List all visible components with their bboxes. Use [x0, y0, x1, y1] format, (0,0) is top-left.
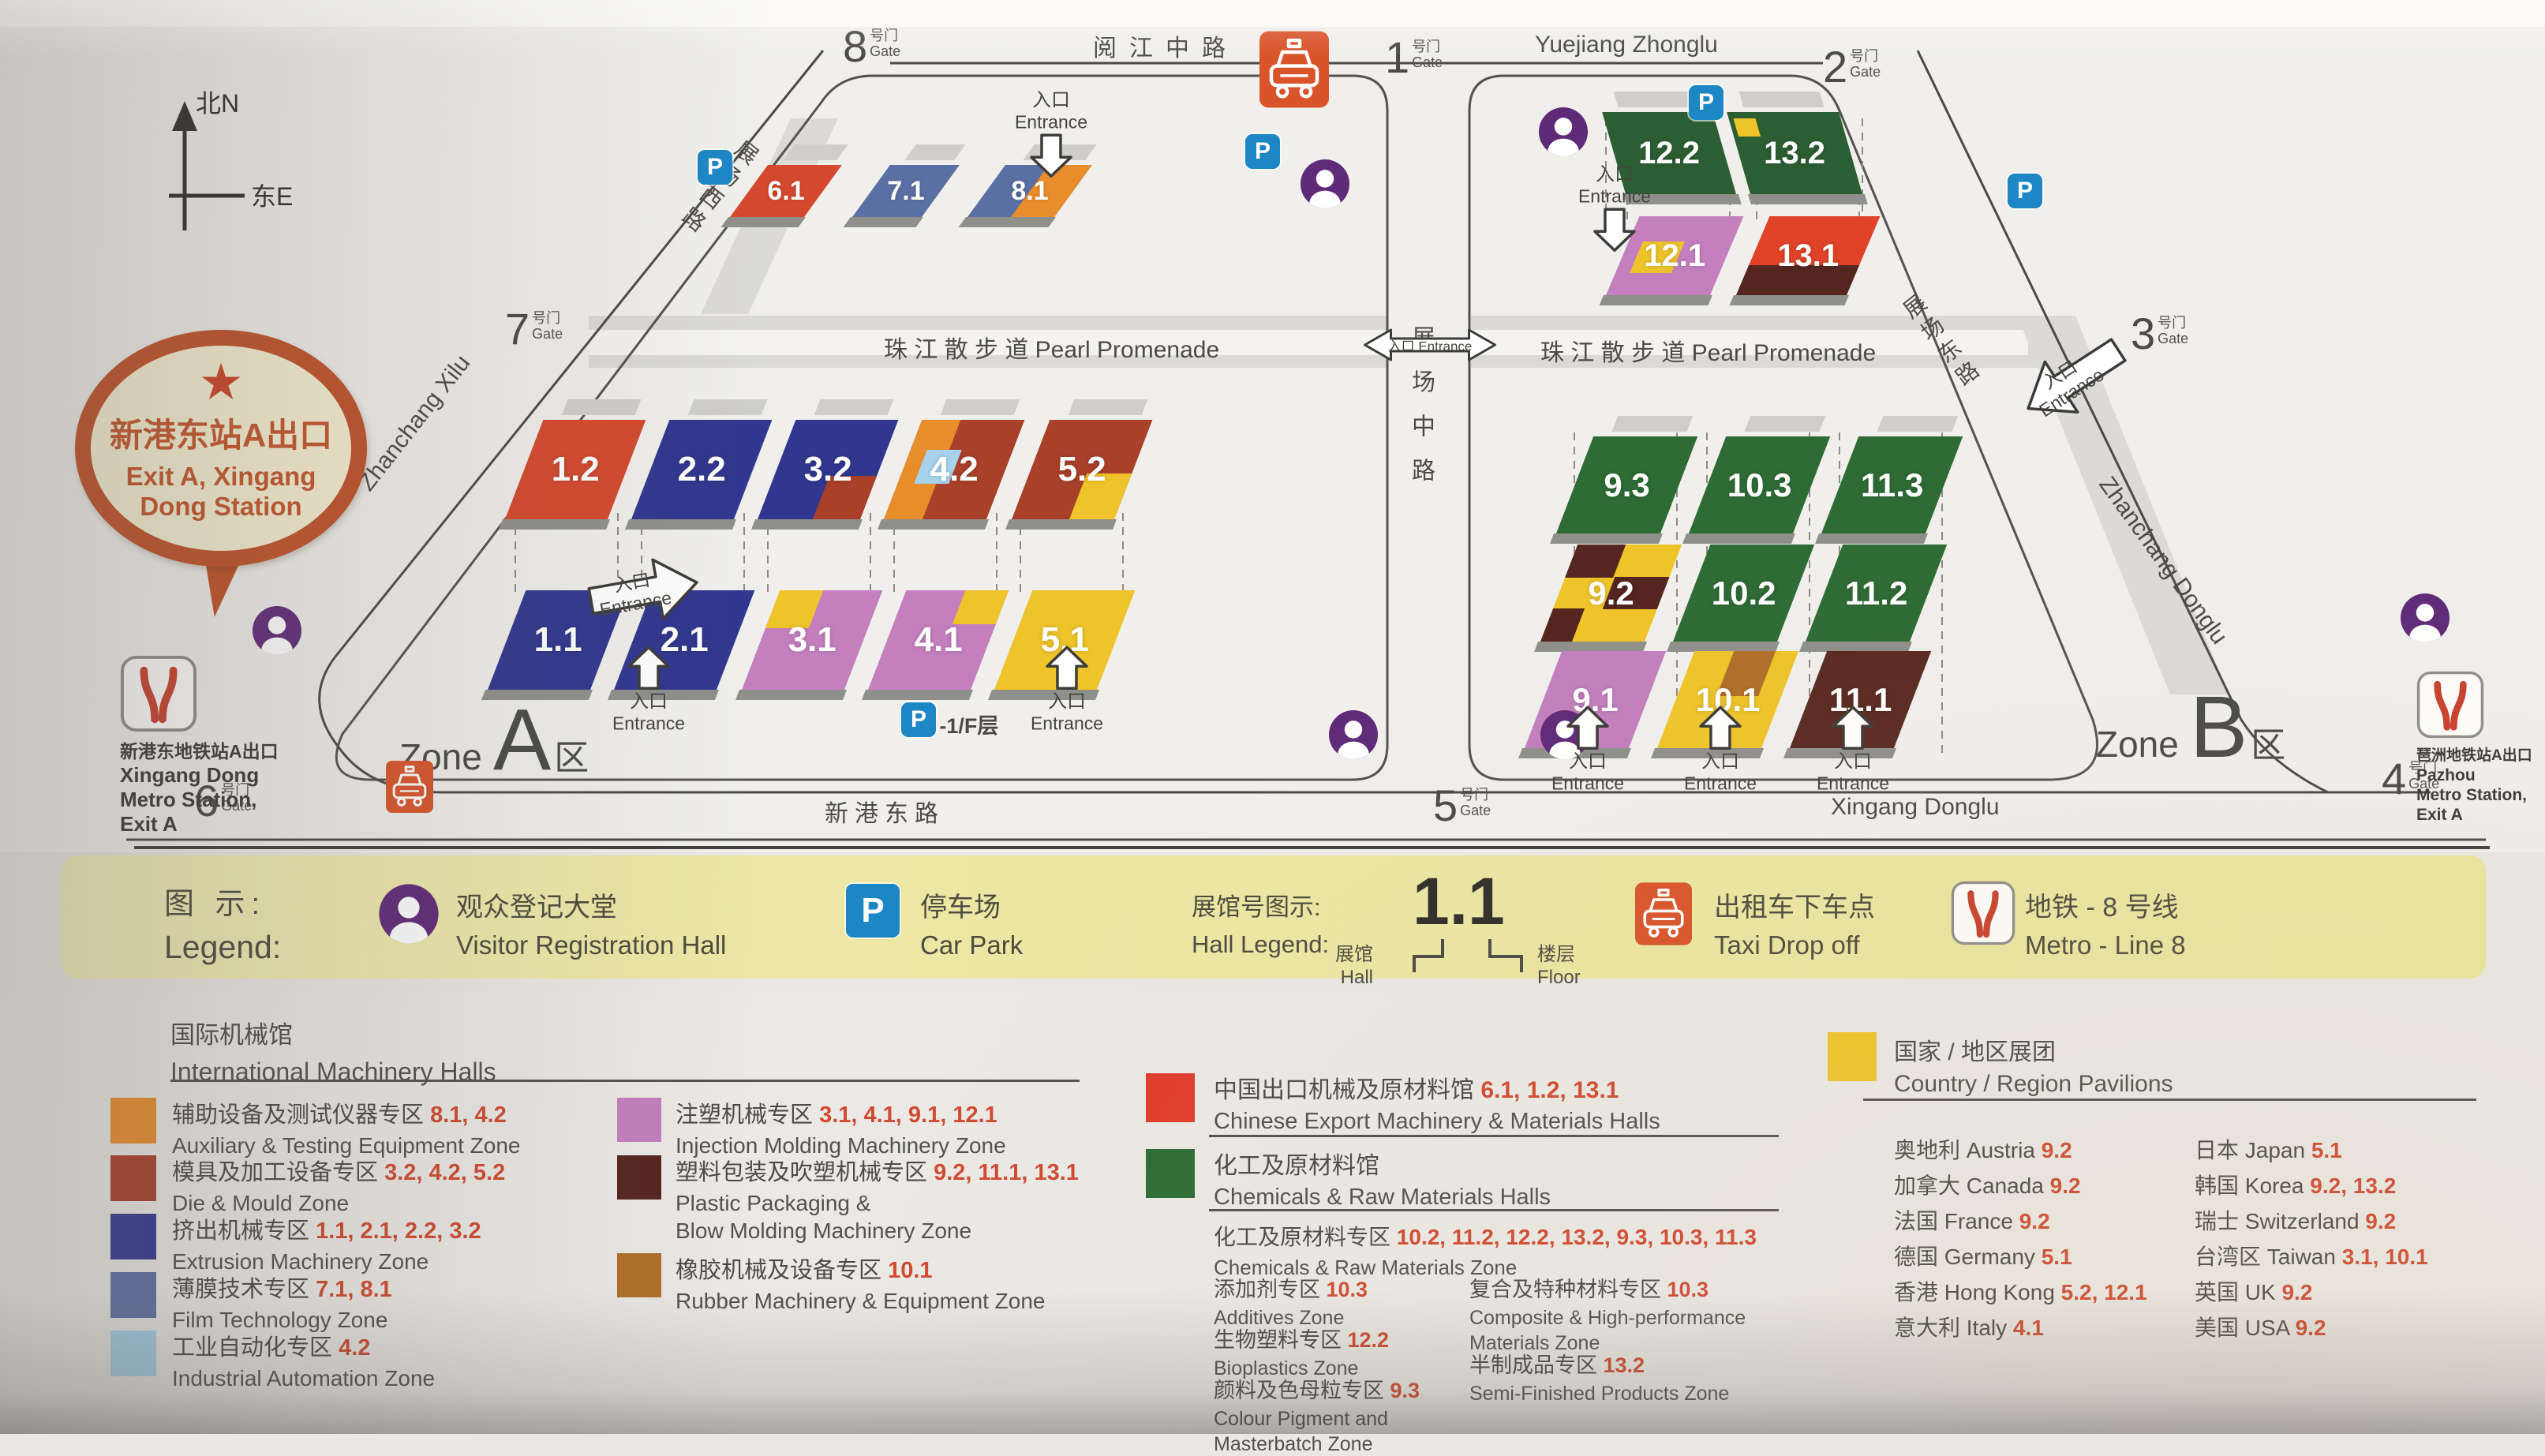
entrance-label: 入口 Entrance: [1388, 335, 1473, 355]
metro-station-label-en: Metro Station,: [2416, 785, 2545, 805]
country-item: 法国 France 9.2: [1894, 1204, 2050, 1236]
hall-shadow: [735, 690, 846, 700]
hall-13.1: 13.1: [1736, 216, 1880, 295]
metro-station-label-en: Pazhou: [2416, 765, 2545, 785]
entrance-label-cn: 入口: [1569, 750, 1607, 772]
hall-10.2: 10.2: [1673, 545, 1814, 642]
country-item: 奥地利 Austria 9.2: [1894, 1133, 2072, 1165]
legend-item: 化工及原材料馆Chemicals & Raw Materials Halls: [1214, 1146, 1551, 1211]
roof-slab: [814, 399, 893, 415]
legend-swatch: [617, 1098, 661, 1142]
parking-icon: P: [698, 150, 732, 185]
entrance-label-en: Entrance: [1684, 773, 1757, 794]
metro-station-label-cn: 新港东地铁站A出口: [120, 741, 300, 763]
metro-station-label-cn: 琶洲地铁站A出口: [2416, 747, 2545, 765]
taxi-label-en: Taxi Drop off: [1714, 930, 1875, 960]
hall-number-sample: 1.1: [1413, 868, 1505, 934]
hall-number: 9.3: [1575, 436, 1679, 533]
entrance-up: 入口Entrance: [1551, 705, 1624, 794]
hall-3.2: 3.2: [758, 420, 898, 519]
hall-1.2: 1.2: [505, 420, 646, 519]
gate-label-cn: 号门: [1850, 49, 1881, 65]
hall-shadow: [1600, 295, 1712, 305]
parking-icon: P: [2008, 174, 2042, 208]
pav-underline: [1863, 1099, 2476, 1101]
road-label-10: 珠 江 散 步 道 Pearl Promenade: [1540, 333, 1876, 368]
hall-number: 13.1: [1753, 216, 1863, 295]
entrance-label-en: Entrance: [1551, 773, 1624, 794]
compass-north-label: 北N: [196, 89, 239, 118]
floor-part-en: Floor: [1537, 967, 1581, 990]
roof-slab: [1612, 416, 1694, 432]
visitor-registration-icon: [251, 604, 303, 661]
visitor-registration-icon: [2399, 592, 2451, 648]
entrance-label-en: Entrance: [612, 713, 685, 734]
hall-shadow: [1730, 295, 1849, 305]
hall-number: 10.2: [1692, 545, 1796, 642]
road-label-8: Xingang Donglu: [1831, 794, 2000, 821]
legend-item: 化工及原材料专区 10.2, 11.2, 12.2, 13.2, 9.3, 10…: [1214, 1220, 1757, 1280]
country-item: 德国 Germany 5.1: [1894, 1240, 2072, 1271]
road-east-outer: [1918, 51, 2328, 792]
parking-floor-note: -1/F层: [939, 709, 998, 739]
legend-title-en: Legend:: [164, 929, 281, 966]
gate-number: 1: [1385, 36, 1409, 78]
legend-item: 复合及特种材料专区 10.3Composite & High-performan…: [1469, 1272, 1746, 1355]
legend-swatch: [110, 1331, 156, 1376]
country-item: 香港 Hong Kong 5.2, 12.1: [1894, 1275, 2147, 1307]
gate-number: 2: [1823, 46, 1847, 88]
entrance-up: 入口Entrance: [612, 645, 685, 734]
car-park-icon: P: [846, 884, 900, 938]
taxi-drop-icon: [1635, 882, 1692, 949]
visitor-hall-icon: [377, 882, 440, 949]
car-park-label-en: Car Park: [920, 930, 1023, 960]
hall-2.2: 2.2: [631, 420, 772, 519]
hall-shadow: [1748, 194, 1867, 204]
badge-title-cn: 新港东站A出口: [91, 409, 351, 457]
hall-shadow: [1682, 533, 1795, 544]
taxi-icon: [384, 761, 436, 817]
legend-item: 薄膜技术专区 7.1, 8.1Film Technology Zone: [172, 1271, 392, 1333]
hall-number: 3.2: [777, 420, 879, 519]
gate-number: 5: [1433, 784, 1458, 826]
country-item: 加拿大 Canada 9.2: [1894, 1169, 2081, 1200]
legend-title-cn: 图 示:: [164, 879, 281, 923]
zone-suffix-cn: 区: [2251, 717, 2285, 767]
country-item: 瑞士 Switzerland 9.2: [2195, 1204, 2396, 1236]
roof-slab: [561, 399, 641, 415]
parking-icon: P-1/F层: [901, 702, 936, 737]
badge-title-en1: Exit A, Xingang: [126, 462, 316, 491]
hall-number: 10.3: [1708, 436, 1812, 533]
road-label-1: Yuejiang Zhonglu: [1535, 32, 1718, 58]
gate-8: 8 号门 Gate: [843, 25, 900, 67]
gate-5: 5 号门 Gate: [1433, 784, 1491, 826]
legend-item: 添加剂专区 10.3Additives Zone: [1214, 1272, 1368, 1330]
legend-swatch: [110, 1214, 156, 1259]
legend-swatch: [110, 1098, 156, 1143]
compass: 北N 东E: [169, 89, 293, 230]
entrance-down: 入口Entrance: [1015, 89, 1087, 178]
entrance-label-cn: 入口: [1834, 750, 1872, 772]
zone-letter: B: [2190, 688, 2247, 766]
hall-number: 4.1: [887, 590, 990, 690]
zone-word: Zone: [2096, 723, 2179, 765]
gate-number: 8: [843, 25, 867, 67]
hall-number: 7.1: [871, 165, 941, 217]
legend-swatch: [617, 1253, 661, 1297]
hall-shadow: [1550, 533, 1662, 544]
hall-number: 9.2: [1559, 545, 1664, 642]
chem-swatch: [1146, 1149, 1195, 1198]
hall-number: 6.1: [749, 165, 823, 217]
gate-number: 7: [505, 308, 530, 350]
legend-item: 中国出口机械及原材料馆 6.1, 1.2, 13.1Chinese Export…: [1214, 1070, 1660, 1135]
metro-station-label-en: Metro Station,: [120, 788, 300, 812]
country-item: 日本 Japan 5.1: [2195, 1133, 2342, 1165]
legend-item: 半制成品专区 13.2Semi-Finished Products Zone: [1469, 1348, 1729, 1405]
legend-swatch: [617, 1155, 661, 1200]
roof-slab: [1738, 92, 1824, 107]
legend-item: 注塑机械专区 3.1, 4.1, 9.1, 12.1Injection Mold…: [676, 1096, 1006, 1158]
gate-2: 2 号门 Gate: [1823, 46, 1881, 88]
hall-10.3: 10.3: [1689, 436, 1830, 533]
hall-number: 5.2: [1031, 420, 1133, 519]
road-label-7: 新港东路: [825, 794, 945, 829]
hall-legend-title-en: Hall Legend:: [1192, 930, 1329, 959]
hall-shadow: [499, 519, 609, 530]
hall-shadow: [721, 217, 806, 227]
roof-slab: [940, 399, 1020, 415]
entrance-label-cn: 入口: [1701, 750, 1739, 772]
country-item: 台湾区 Taiwan 3.1, 10.1: [2195, 1240, 2428, 1271]
metro-station-icon-pazhou: 琶洲地铁站A出口PazhouMetro Station,Exit A: [2416, 671, 2545, 825]
roof-slab: [1877, 416, 1959, 432]
entrance-up: 入口Entrance: [1817, 705, 1889, 794]
legend-item: 挤出机械专区 1.1, 2.1, 2.2, 3.2Extrusion Machi…: [172, 1212, 481, 1274]
metro-label-en: Metro - Line 8: [2025, 930, 2186, 960]
hall-13.2: 13.2: [1727, 112, 1862, 194]
intl-halls-title-en: International Machinery Halls: [170, 1057, 496, 1087]
road-label-9: 珠 江 散 步 道 Pearl Promenade: [884, 330, 1219, 365]
entrance-label-en: Entrance: [1578, 186, 1651, 207]
divider-line: [134, 846, 2490, 849]
roof-slab: [1068, 399, 1147, 415]
taxi-label-cn: 出租车下车点: [1714, 885, 1875, 924]
legend-item: 工业自动化专区 4.2Industrial Automation Zone: [172, 1329, 435, 1391]
visitor-hall-label-cn: 观众登记大堂: [456, 885, 726, 924]
legend-item: 橡胶机械及设备专区 10.1Rubber Machinery & Equipme…: [676, 1252, 1045, 1314]
gate-label-en: Gate: [1412, 55, 1443, 71]
gate-label-en: Gate: [1850, 65, 1881, 80]
road-label-0: 阅江中路: [1093, 28, 1238, 63]
export-underline: [1209, 1135, 1779, 1137]
entrance-down: 入口Entrance: [1578, 163, 1651, 253]
hall-4.1: 4.1: [868, 590, 1009, 690]
country-item: 美国 USA 9.2: [2195, 1311, 2326, 1342]
zone-letter: A: [493, 701, 551, 779]
entrance-up: 入口Entrance: [1031, 645, 1103, 734]
legend-item: 辅助设备及测试仪器专区 8.1, 4.2Auxiliary & Testing …: [172, 1096, 521, 1158]
gate-label-en: Gate: [532, 327, 563, 342]
gate-label-cn: 号门: [1412, 39, 1443, 55]
hall-shadow: [751, 519, 862, 530]
entrance-label-en: Entrance: [1031, 713, 1103, 734]
gate-label-en: Gate: [1460, 803, 1491, 819]
hall-shadow: [862, 690, 972, 700]
country-item: 英国 UK 9.2: [2195, 1275, 2312, 1307]
taxi-icon: [1259, 30, 1329, 113]
hall-9.2: 9.2: [1540, 545, 1682, 642]
country-item: 韩国 Korea 9.2, 13.2: [2195, 1169, 2396, 1200]
entrance-label-en: Entrance: [1817, 773, 1889, 794]
hall-11.2: 11.2: [1806, 545, 1947, 642]
gate-label-cn: 号门: [532, 311, 563, 327]
legend-item: 生物塑料专区 12.2Bioplastics Zone: [1214, 1323, 1389, 1380]
legend-swatch: [110, 1272, 156, 1318]
compass-east-label: 东E: [251, 182, 293, 211]
gate-3: 3 号门 Gate: [2131, 313, 2188, 354]
gate-label-cn: 号门: [2158, 316, 2188, 331]
intl-underline: [170, 1080, 1080, 1082]
hall-shadow: [1815, 533, 1927, 544]
hall-number: 13.2: [1738, 112, 1851, 194]
metro-line8-icon: [1951, 881, 2015, 949]
hall-number: 4.2: [903, 420, 1005, 519]
hall-number: 1.2: [524, 420, 627, 519]
hall-shadow: [958, 217, 1056, 227]
gate-7: 7 号门 Gate: [505, 308, 563, 350]
hall-number: 11.2: [1825, 545, 1929, 642]
hall-3.1: 3.1: [742, 590, 882, 690]
star-icon: ★: [91, 357, 351, 407]
hall-number: 3.1: [761, 590, 863, 690]
hall-shadow: [1005, 519, 1116, 530]
entrance-label-cn: 入口: [1596, 163, 1634, 185]
roof-slab: [1614, 92, 1698, 107]
hall-number: 11.3: [1840, 436, 1944, 533]
parking-icon: P: [1689, 85, 1723, 120]
visitor-registration-icon: [1327, 709, 1379, 765]
visitor-hall-label-en: Visitor Registration Hall: [456, 930, 726, 960]
intl-halls-title-cn: 国际机械馆: [170, 1015, 496, 1050]
export-swatch: [1146, 1073, 1195, 1122]
metro-station-label-en: Exit A: [120, 812, 300, 837]
entrance-up: 入口Entrance: [1684, 705, 1757, 794]
entrance-double: 入口 Entrance: [1361, 319, 1499, 371]
zone-suffix-cn: 区: [554, 729, 589, 780]
hall-4.2: 4.2: [884, 420, 1024, 519]
car-park-label-cn: 停车场: [920, 885, 1023, 924]
hall-9.3: 9.3: [1556, 436, 1697, 533]
hall-shadow: [625, 519, 735, 530]
hall-part-cn: 展馆: [1335, 944, 1373, 967]
roof-slab: [687, 399, 767, 415]
metro-station-icon-xingangdong: 新港东地铁站A出口Xingang DongMetro Station,Exit …: [120, 655, 300, 837]
parking-icon: P: [1245, 134, 1280, 169]
floor-part-cn: 楼层: [1537, 944, 1581, 967]
entrance-label-cn: 入口: [1048, 691, 1086, 712]
gate-label-en: Gate: [2158, 331, 2188, 347]
legend-swatch: [110, 1155, 156, 1201]
legend-item: 颜料及色母粒专区 9.3Colour Pigment andMasterbatc…: [1214, 1373, 1420, 1456]
gate-number: 3: [2131, 313, 2155, 354]
hall-number: 2.2: [650, 420, 753, 519]
pavilion-swatch: [1828, 1032, 1877, 1081]
hall-11.3: 11.3: [1821, 436, 1963, 533]
gate-number: 4: [2382, 758, 2406, 799]
metro-station-label-en: Xingang Dong: [120, 763, 300, 788]
zone-label-B: Zone B 区: [2096, 688, 2285, 767]
badge-title-en2: Dong Station: [140, 492, 301, 521]
roof-slab: [1745, 416, 1826, 432]
xingang-exit-badge: ★ 新港东站A出口 Exit A, Xingang Dong Station: [75, 330, 367, 567]
metro-station-label-en: Exit A: [2416, 805, 2545, 825]
entrance-label-en: Entrance: [1015, 112, 1087, 133]
hall-legend-title-cn: 展馆号图示:: [1192, 887, 1329, 923]
hall-5.2: 5.2: [1012, 420, 1152, 519]
hall-shadow: [844, 217, 923, 227]
hall-shadow: [878, 519, 988, 530]
hall-part-en: Hall: [1335, 967, 1373, 990]
gate-label-cn: 号门: [1460, 788, 1491, 803]
entrance-label-cn: 入口: [1032, 89, 1070, 110]
legend-item: 塑料包装及吹塑机械专区 9.2, 11.1, 13.1Plastic Packa…: [676, 1154, 1079, 1244]
visitor-registration-icon: [1299, 158, 1351, 214]
gate-1: 1 号门 Gate: [1385, 36, 1443, 78]
gate-label-en: Gate: [870, 44, 900, 60]
metro-label-cn: 地铁 - 8 号线: [2025, 885, 2186, 924]
country-item: 意大利 Italy 4.1: [1894, 1311, 2044, 1342]
legend-item: 国家 / 地区展团Country / Region Pavilions: [1894, 1032, 2173, 1098]
visitor-registration-icon: [1537, 106, 1589, 162]
gate-label-cn: 号门: [870, 28, 900, 44]
entrance-label-cn: 入口: [630, 691, 668, 712]
legend-item: 模具及加工设备专区 3.2, 4.2, 5.2Die & Mould Zone: [172, 1154, 505, 1216]
